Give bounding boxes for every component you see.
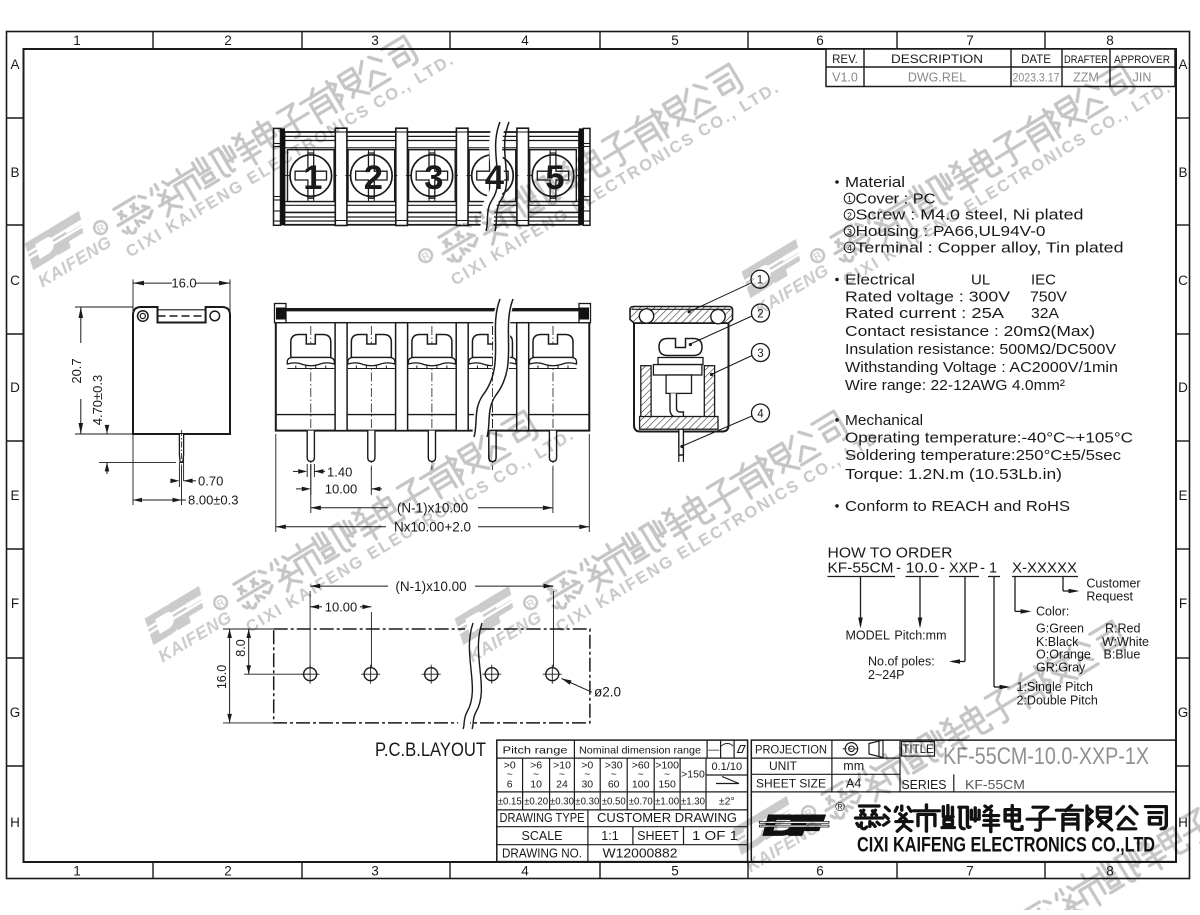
- svg-text:3: 3: [757, 348, 763, 360]
- svg-text:4.70±0.3: 4.70±0.3: [90, 375, 105, 426]
- svg-text:Nominal dimension range: Nominal dimension range: [579, 745, 701, 757]
- svg-text:7: 7: [966, 864, 974, 879]
- svg-text:100: 100: [632, 779, 650, 791]
- svg-text:Wire range: 22-12AWG 4.0mm²: Wire range: 22-12AWG 4.0mm²: [845, 377, 1065, 394]
- svg-text:2: 2: [847, 211, 852, 221]
- svg-text:D: D: [10, 380, 20, 395]
- svg-text:Color:: Color:: [1036, 604, 1069, 618]
- svg-text:5: 5: [671, 33, 679, 48]
- svg-text:1:1: 1:1: [601, 829, 618, 843]
- svg-text:Insulation resistance: 500MΩ/D: Insulation resistance: 500MΩ/DC500V: [845, 341, 1116, 358]
- svg-text:SHEET: SHEET: [637, 829, 679, 843]
- svg-text:Torque: 1.2N.m (10.53Lb.in): Torque: 1.2N.m (10.53Lb.in): [845, 466, 1062, 483]
- svg-text:±0.70: ±0.70: [629, 796, 653, 808]
- svg-text:4: 4: [485, 159, 504, 197]
- svg-text:Conform to REACH and RoHS: Conform to REACH and RoHS: [845, 498, 1070, 515]
- svg-text:1: 1: [73, 33, 81, 48]
- svg-text:ZZM: ZZM: [1073, 71, 1099, 85]
- svg-text:XXP: XXP: [949, 561, 978, 577]
- svg-text:5: 5: [671, 864, 679, 879]
- svg-text:G: G: [1178, 705, 1189, 720]
- svg-text:CIXI KAIFENG ELECTRONICS CO.,: CIXI KAIFENG ELECTRONICS CO., LTD.: [553, 425, 888, 636]
- svg-text:W12000882: W12000882: [603, 847, 678, 861]
- svg-text:CIXI KAIFENG ELECTRONICS CO.,L: CIXI KAIFENG ELECTRONICS CO.,LTD: [857, 834, 1155, 857]
- svg-text:E: E: [1178, 488, 1187, 503]
- svg-text:MODEL: MODEL: [846, 628, 891, 642]
- svg-text:4: 4: [757, 408, 764, 420]
- svg-text:DRAWING NO.: DRAWING NO.: [502, 847, 582, 861]
- svg-text:-: -: [940, 561, 945, 577]
- svg-text:24: 24: [556, 779, 568, 791]
- svg-text:7: 7: [966, 33, 974, 48]
- svg-text:±1.30: ±1.30: [681, 796, 705, 808]
- svg-text:KF-55CM-10.0-XXP-1X: KF-55CM-10.0-XXP-1X: [943, 743, 1149, 770]
- svg-text:1: 1: [989, 561, 997, 577]
- svg-text:V1.0: V1.0: [832, 71, 858, 85]
- svg-text:2: 2: [224, 864, 232, 879]
- svg-text:0.70: 0.70: [198, 474, 223, 489]
- svg-text:H: H: [10, 815, 20, 830]
- svg-text:>150: >150: [681, 769, 705, 781]
- svg-text:±0.30: ±0.30: [575, 796, 599, 808]
- svg-text:SHEET SIZE: SHEET SIZE: [756, 777, 826, 791]
- svg-text:4: 4: [521, 864, 529, 879]
- svg-text:(N-1)x10.00: (N-1)x10.00: [395, 579, 466, 594]
- svg-text:mm: mm: [843, 759, 864, 773]
- svg-text:Rated current : 25A: Rated current : 25A: [845, 305, 1004, 322]
- svg-text:4: 4: [521, 33, 529, 48]
- svg-text:F: F: [1179, 596, 1187, 611]
- svg-text:1: 1: [847, 194, 852, 204]
- svg-text:±0.30: ±0.30: [550, 796, 574, 808]
- svg-text:1: 1: [303, 159, 322, 197]
- svg-text:8.0: 8.0: [234, 639, 248, 656]
- svg-text:Withstanding Voltage : AC2000V: Withstanding Voltage : AC2000V/1min: [845, 359, 1118, 376]
- svg-text:150: 150: [658, 779, 676, 791]
- svg-text:A: A: [10, 57, 19, 72]
- svg-text:6: 6: [816, 864, 824, 879]
- svg-text:C: C: [10, 273, 20, 288]
- svg-text:2023.3.17: 2023.3.17: [1013, 71, 1060, 85]
- svg-text:750V: 750V: [1030, 288, 1067, 305]
- svg-text:E: E: [10, 488, 19, 503]
- svg-text:KF-55CM: KF-55CM: [828, 561, 894, 577]
- svg-text:Customer: Customer: [1086, 577, 1140, 591]
- svg-text:C: C: [1178, 273, 1188, 288]
- svg-text:16.0: 16.0: [171, 276, 196, 291]
- svg-text:DRAFTER: DRAFTER: [1064, 54, 1108, 66]
- svg-text:-: -: [980, 561, 985, 577]
- svg-text:REV.: REV.: [832, 54, 858, 66]
- svg-text:1.40: 1.40: [327, 464, 352, 479]
- svg-text:UNIT: UNIT: [769, 759, 798, 773]
- svg-text:±0.50: ±0.50: [602, 796, 626, 808]
- svg-text:ø2.0: ø2.0: [594, 685, 621, 700]
- svg-text:10: 10: [530, 779, 542, 791]
- svg-text:A: A: [1178, 57, 1187, 72]
- svg-text:P.C.B.LAYOUT: P.C.B.LAYOUT: [375, 739, 486, 761]
- svg-text:3: 3: [371, 33, 379, 48]
- svg-text:B: B: [10, 165, 19, 180]
- svg-text:1: 1: [73, 864, 81, 879]
- svg-text:B: B: [1178, 165, 1187, 180]
- svg-text:2~24P: 2~24P: [868, 668, 905, 682]
- svg-text:Soldering temperature:250°C±5/: Soldering temperature:250°C±5/5sec: [845, 447, 1122, 464]
- svg-text:0.1/10: 0.1/10: [712, 761, 743, 773]
- svg-text:DESCRIPTION: DESCRIPTION: [891, 54, 983, 66]
- svg-text:10.00: 10.00: [325, 482, 358, 497]
- svg-text:⌒: ⌒: [721, 743, 734, 758]
- svg-text:Pitch:mm: Pitch:mm: [894, 628, 946, 642]
- svg-text:Operating temperature:-40°C~+1: Operating temperature:-40°C~+105°C: [845, 429, 1133, 446]
- svg-text:UL: UL: [971, 272, 990, 289]
- svg-text:6: 6: [816, 33, 824, 48]
- svg-text:±2°: ±2°: [719, 796, 735, 808]
- svg-text:32A: 32A: [1031, 305, 1059, 322]
- svg-text:10.0: 10.0: [906, 561, 938, 577]
- svg-text:KF-55CM: KF-55CM: [965, 777, 1025, 792]
- svg-text:20.7: 20.7: [69, 358, 84, 383]
- svg-text:G: G: [10, 705, 21, 720]
- svg-text:PROJECTION: PROJECTION: [755, 743, 827, 757]
- svg-text:±0.15: ±0.15: [498, 796, 522, 808]
- svg-text:±1.00: ±1.00: [655, 796, 679, 808]
- svg-text:2: 2: [364, 159, 383, 197]
- svg-text:DRAWING TYPE: DRAWING TYPE: [500, 811, 585, 825]
- svg-text:SCALE: SCALE: [522, 829, 563, 843]
- svg-text:3: 3: [371, 864, 379, 879]
- svg-text:No.of poles:: No.of poles:: [868, 655, 935, 669]
- svg-text:-: -: [896, 561, 901, 577]
- svg-text:Rated voltage : 300V: Rated voltage : 300V: [845, 288, 1010, 305]
- svg-text:G:Green: G:Green: [1036, 622, 1084, 636]
- svg-text:—: —: [708, 744, 719, 756]
- svg-text:Pitch range: Pitch range: [503, 745, 568, 757]
- svg-text:CUSTOMER DRAWING: CUSTOMER DRAWING: [597, 811, 737, 825]
- svg-text:16.0: 16.0: [215, 665, 229, 689]
- svg-text:Contact resistance : 20mΩ(Max): Contact resistance : 20mΩ(Max): [845, 323, 1095, 340]
- svg-text:SERIES: SERIES: [902, 778, 947, 792]
- svg-text:IEC: IEC: [1031, 272, 1056, 289]
- svg-text:JIN: JIN: [1133, 71, 1152, 85]
- svg-text:Mechanical: Mechanical: [845, 412, 923, 429]
- svg-text:X-XXXXX: X-XXXXX: [1012, 561, 1077, 577]
- svg-text:6: 6: [507, 779, 513, 791]
- svg-text:Request: Request: [1086, 589, 1133, 603]
- svg-text:DATE: DATE: [1021, 54, 1051, 66]
- svg-text:Material: Material: [845, 174, 905, 191]
- svg-text:10.00: 10.00: [325, 600, 358, 615]
- svg-text:DWG.REL: DWG.REL: [908, 71, 966, 85]
- svg-text:8: 8: [1106, 33, 1114, 48]
- svg-text:30: 30: [581, 779, 593, 791]
- svg-text:60: 60: [608, 779, 620, 791]
- svg-text:HOW TO ORDER: HOW TO ORDER: [828, 546, 953, 562]
- svg-text:D: D: [1178, 380, 1188, 395]
- svg-text:F: F: [11, 596, 19, 611]
- svg-text:3: 3: [424, 159, 443, 197]
- svg-text:8.00±0.3: 8.00±0.3: [188, 493, 239, 508]
- svg-text:2: 2: [224, 33, 232, 48]
- svg-text:±0.20: ±0.20: [524, 796, 548, 808]
